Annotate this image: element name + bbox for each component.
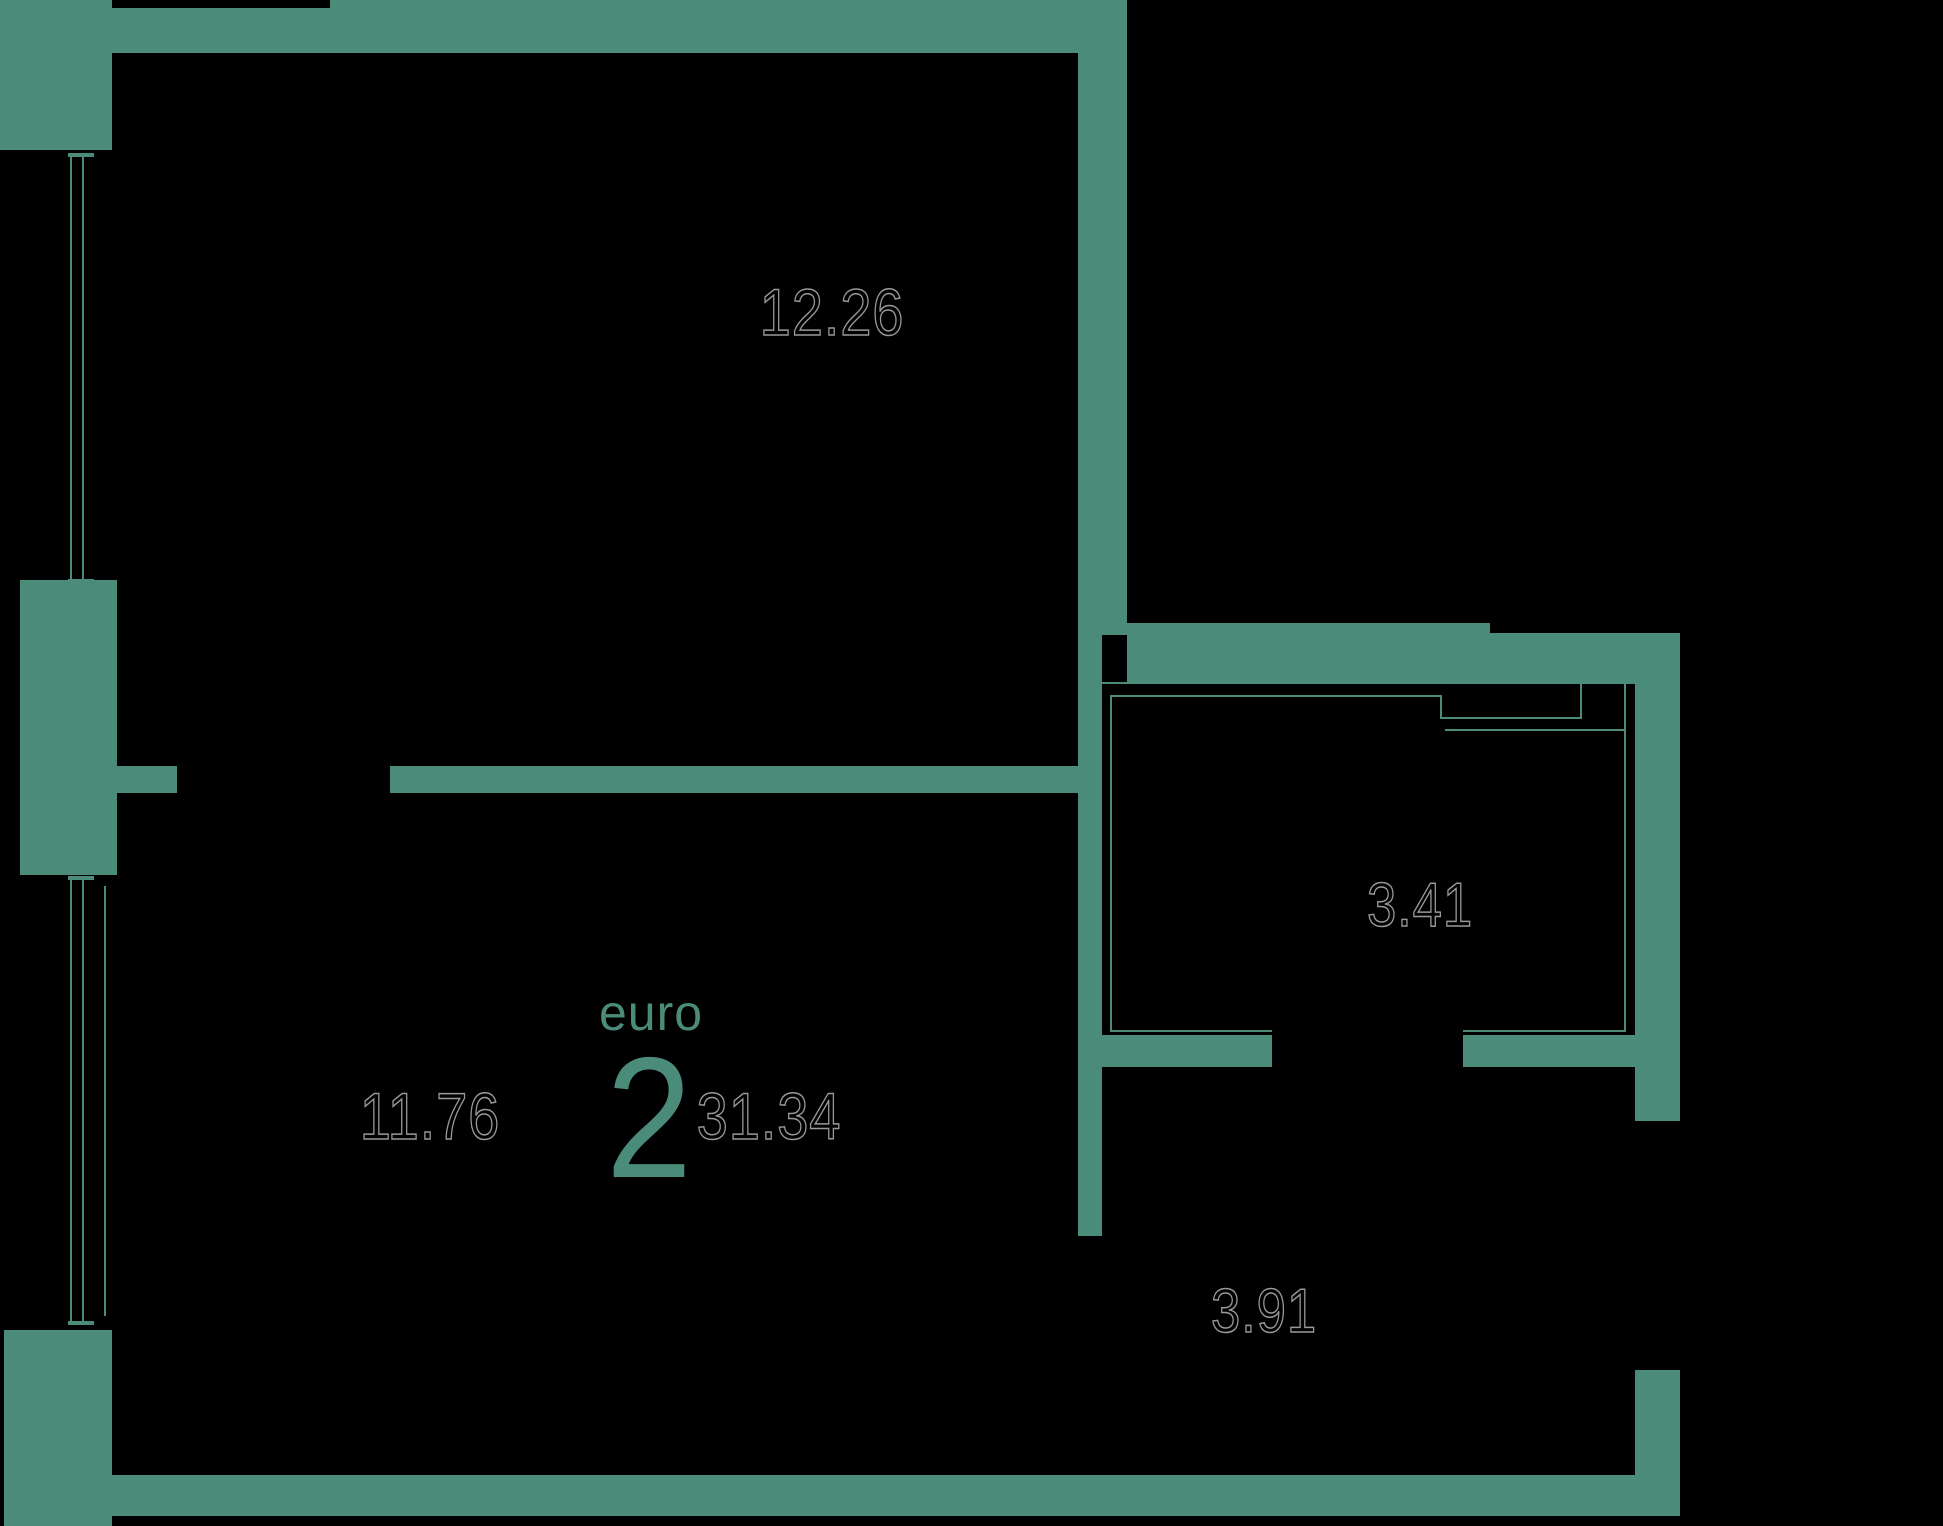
room-area-bathroom: 3.41 [1293,875,1548,937]
wall-bottom-left-block [4,1330,112,1526]
window-upper-frame-right [82,155,84,581]
wall-right-section-top-a [1127,623,1490,682]
room-area-hallway: 3.91 [1137,1281,1392,1343]
wall-top-exterior-thin [112,8,330,53]
bathroom-shelf-line [1445,729,1626,731]
unit-total-area: 31.34 [642,1084,897,1148]
floor-plan: 12.26 11.76 3.41 3.91 euro 2 31.34 [0,0,1943,1526]
wall-left-mid-pier [20,580,117,875]
window-lower-frame-right [82,880,84,1321]
window-lower-cap-bottom [68,1321,94,1325]
window-upper-cap-top [68,153,94,157]
wall-top-left-block [0,0,112,150]
window-upper-cap-bottom [68,579,94,583]
bathroom-outline-bottom-left [1110,1030,1272,1032]
bathroom-niche-right [1580,682,1582,719]
bathroom-outline-bottom-right [1463,1030,1624,1032]
window-lower-cap-top [68,876,94,880]
window-upper-frame-left [70,155,72,581]
bathroom-niche-bottom [1440,717,1580,719]
bathroom-niche-left [1440,695,1442,719]
room-area-bedroom: 12.26 [705,280,960,344]
wall-bathroom-bottom-left [1102,1035,1272,1067]
wall-living-hall-divider [1078,635,1102,1236]
window-lower-frame-inner [104,886,106,1316]
wall-bedroom-right [1078,0,1127,635]
bathroom-outline-top-inner [1110,695,1440,697]
wall-bathroom-bottom-right [1463,1035,1635,1067]
bathroom-outline-left [1110,695,1112,1032]
bathroom-outline-right [1624,682,1626,1032]
wall-interior-bedroom-living [390,766,1078,793]
wall-right-exterior-upper [1635,633,1680,1121]
wall-bottom-exterior [112,1475,1680,1516]
bathroom-outline-top-full [1102,682,1635,684]
wall-top-exterior-main [330,0,1127,53]
wall-interior-stub [117,766,177,793]
window-lower-frame-left [70,880,72,1321]
